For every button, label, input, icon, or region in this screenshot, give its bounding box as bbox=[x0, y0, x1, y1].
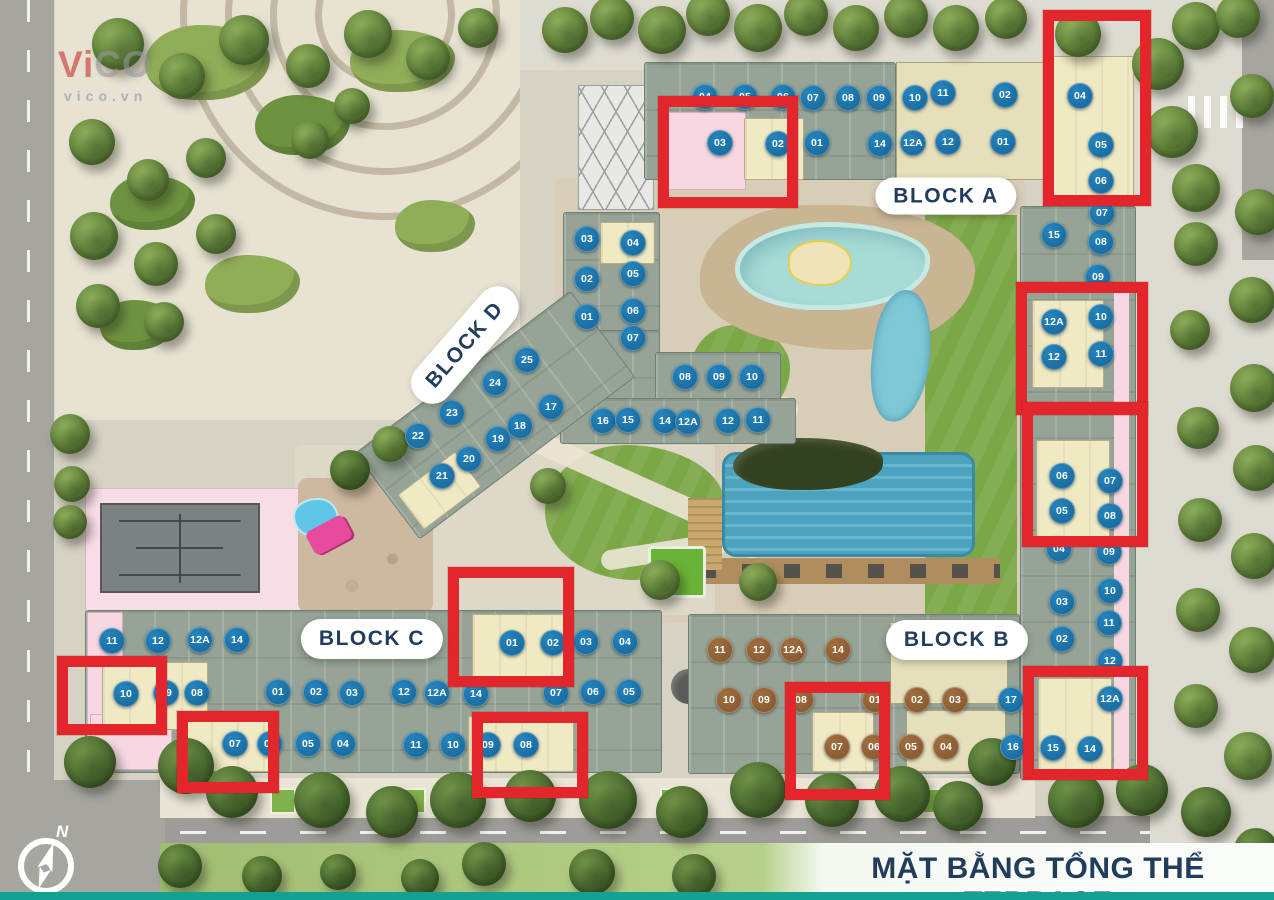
unit-12A: 12A bbox=[675, 409, 701, 435]
tree-icon bbox=[833, 5, 879, 51]
unit-11: 11 bbox=[745, 407, 771, 433]
unit-10: 10 bbox=[739, 364, 765, 390]
unit-12A: 12A bbox=[780, 637, 806, 663]
unit-04: 04 bbox=[933, 734, 959, 760]
unit-24: 24 bbox=[482, 370, 508, 396]
tree-icon bbox=[1229, 277, 1274, 323]
highlight-box bbox=[1022, 402, 1148, 547]
unit-12A: 12A bbox=[424, 680, 450, 706]
watermark-domain: vico.vn bbox=[64, 88, 152, 104]
unit-03: 03 bbox=[942, 687, 968, 713]
tree-icon bbox=[458, 8, 498, 48]
tree-icon bbox=[242, 856, 282, 896]
tree-icon bbox=[1235, 189, 1274, 235]
unit-01: 01 bbox=[804, 130, 830, 156]
unit-05: 05 bbox=[620, 261, 646, 287]
tree-icon bbox=[186, 138, 226, 178]
unit-04: 04 bbox=[330, 731, 356, 757]
tree-icon bbox=[1178, 498, 1222, 542]
unit-15: 15 bbox=[615, 407, 641, 433]
unit-08: 08 bbox=[835, 85, 861, 111]
tree-icon bbox=[933, 5, 979, 51]
tree-icon bbox=[739, 563, 777, 601]
block-label-block-b: BLOCK B bbox=[886, 620, 1028, 660]
unit-04: 04 bbox=[620, 230, 646, 256]
unit-01: 01 bbox=[990, 129, 1016, 155]
unit-10: 10 bbox=[716, 687, 742, 713]
unit-08: 08 bbox=[184, 680, 210, 706]
tree-icon bbox=[334, 88, 370, 124]
unit-08: 08 bbox=[1088, 229, 1114, 255]
tree-icon bbox=[530, 468, 566, 504]
site-plan: 0405060708091011020302011412A12010405060… bbox=[0, 0, 1274, 900]
tree-icon bbox=[1170, 310, 1210, 350]
tree-icon bbox=[590, 0, 634, 40]
footer-accent-bar bbox=[0, 892, 1274, 900]
unit-10: 10 bbox=[1097, 578, 1123, 604]
unit-15: 15 bbox=[1041, 222, 1067, 248]
block-label-block-c: BLOCK C bbox=[301, 619, 443, 659]
tree-icon bbox=[53, 505, 87, 539]
unit-18: 18 bbox=[507, 413, 533, 439]
unit-12: 12 bbox=[391, 679, 417, 705]
tree-icon bbox=[1174, 222, 1218, 266]
highlight-box bbox=[177, 711, 279, 793]
tree-icon bbox=[159, 53, 205, 99]
tree-icon bbox=[1172, 164, 1220, 212]
tree-icon bbox=[1224, 732, 1272, 780]
tree-icon bbox=[638, 6, 686, 54]
tree-icon bbox=[196, 214, 236, 254]
tree-icon bbox=[1230, 364, 1274, 412]
tree-icon bbox=[1181, 787, 1231, 837]
watermark-brand-red: Vi bbox=[58, 44, 94, 85]
unit-11: 11 bbox=[1096, 610, 1122, 636]
tree-icon bbox=[127, 159, 169, 201]
tree-icon bbox=[985, 0, 1027, 39]
tree-icon bbox=[291, 121, 329, 159]
highlight-box bbox=[785, 682, 890, 800]
tree-icon bbox=[76, 284, 120, 328]
tree-icon bbox=[69, 119, 115, 165]
unit-19: 19 bbox=[485, 426, 511, 452]
unit-03: 03 bbox=[1049, 589, 1075, 615]
block-label-block-d: BLOCK D bbox=[403, 278, 528, 413]
unit-02: 02 bbox=[574, 266, 600, 292]
unit-07: 07 bbox=[800, 85, 826, 111]
unit-05: 05 bbox=[616, 679, 642, 705]
unit-02: 02 bbox=[1049, 626, 1075, 652]
block-label-block-a: BLOCK A bbox=[875, 178, 1016, 215]
unit-03: 03 bbox=[573, 629, 599, 655]
tree-icon bbox=[1048, 772, 1104, 828]
tree-icon bbox=[1172, 2, 1220, 50]
tree-icon bbox=[70, 212, 118, 260]
unit-03: 03 bbox=[574, 226, 600, 252]
unit-12: 12 bbox=[746, 637, 772, 663]
tree-icon bbox=[462, 842, 506, 886]
unit-22: 22 bbox=[405, 423, 431, 449]
unit-14: 14 bbox=[825, 637, 851, 663]
highlight-box bbox=[1016, 282, 1148, 415]
unit-02: 02 bbox=[904, 687, 930, 713]
tree-icon bbox=[1174, 684, 1218, 728]
tree-icon bbox=[50, 414, 90, 454]
unit-25: 25 bbox=[514, 347, 540, 373]
tree-icon bbox=[54, 466, 90, 502]
tree-icon bbox=[542, 7, 588, 53]
unit-01: 01 bbox=[265, 679, 291, 705]
unit-11: 11 bbox=[930, 80, 956, 106]
tree-icon bbox=[1177, 407, 1219, 449]
tree-icon bbox=[1230, 74, 1274, 118]
unit-02: 02 bbox=[992, 82, 1018, 108]
tree-icon bbox=[686, 0, 730, 36]
tree-icon bbox=[730, 762, 786, 818]
unit-16: 16 bbox=[590, 408, 616, 434]
unit-20: 20 bbox=[456, 446, 482, 472]
unit-21: 21 bbox=[429, 463, 455, 489]
tree-icon bbox=[784, 0, 828, 36]
map-overlay-layer: 0405060708091011020302011412A12010405060… bbox=[0, 0, 1274, 900]
tree-icon bbox=[158, 844, 202, 888]
tree-icon bbox=[734, 4, 782, 52]
unit-06: 06 bbox=[580, 679, 606, 705]
unit-09: 09 bbox=[751, 687, 777, 713]
unit-12A: 12A bbox=[900, 130, 926, 156]
unit-23: 23 bbox=[439, 400, 465, 426]
tree-icon bbox=[219, 15, 269, 65]
tree-icon bbox=[366, 786, 418, 838]
unit-12: 12 bbox=[935, 129, 961, 155]
highlight-box bbox=[658, 96, 798, 208]
tree-icon bbox=[656, 786, 708, 838]
tree-icon bbox=[1216, 0, 1260, 38]
unit-02: 02 bbox=[303, 679, 329, 705]
tree-icon bbox=[406, 36, 450, 80]
highlight-box bbox=[472, 712, 588, 798]
unit-08: 08 bbox=[672, 364, 698, 390]
tree-icon bbox=[330, 450, 370, 490]
unit-12: 12 bbox=[715, 408, 741, 434]
unit-17: 17 bbox=[998, 687, 1024, 713]
unit-05: 05 bbox=[898, 734, 924, 760]
unit-04: 04 bbox=[612, 629, 638, 655]
tree-icon bbox=[1231, 533, 1274, 579]
compass-icon: N bbox=[8, 826, 92, 898]
unit-07: 07 bbox=[620, 325, 646, 351]
watermark: ViCO vico.vn bbox=[58, 44, 152, 104]
unit-12: 12 bbox=[145, 628, 171, 654]
unit-09: 09 bbox=[866, 85, 892, 111]
unit-06: 06 bbox=[620, 298, 646, 324]
unit-11: 11 bbox=[707, 637, 733, 663]
watermark-brand-gray: CO bbox=[94, 44, 152, 85]
tree-icon bbox=[569, 849, 615, 895]
unit-10: 10 bbox=[440, 732, 466, 758]
unit-14: 14 bbox=[867, 131, 893, 157]
highlight-box bbox=[1023, 666, 1148, 780]
unit-01: 01 bbox=[574, 304, 600, 330]
tree-icon bbox=[286, 44, 330, 88]
tree-icon bbox=[1176, 588, 1220, 632]
unit-14: 14 bbox=[224, 627, 250, 653]
tree-icon bbox=[144, 302, 184, 342]
tree-icon bbox=[933, 781, 983, 831]
unit-12A: 12A bbox=[187, 627, 213, 653]
tree-icon bbox=[1146, 106, 1198, 158]
tree-icon bbox=[294, 772, 350, 828]
unit-17: 17 bbox=[538, 394, 564, 420]
tree-icon bbox=[344, 10, 392, 58]
unit-11: 11 bbox=[403, 732, 429, 758]
tree-icon bbox=[884, 0, 928, 38]
unit-10: 10 bbox=[902, 85, 928, 111]
tree-icon bbox=[640, 560, 680, 600]
tree-icon bbox=[372, 426, 408, 462]
tree-icon bbox=[320, 854, 356, 890]
highlight-box bbox=[57, 656, 167, 735]
tree-icon bbox=[1229, 627, 1274, 673]
unit-09: 09 bbox=[706, 364, 732, 390]
unit-11: 11 bbox=[99, 628, 125, 654]
tree-icon bbox=[134, 242, 178, 286]
tree-icon bbox=[1233, 445, 1274, 491]
unit-03: 03 bbox=[339, 680, 365, 706]
tree-icon bbox=[64, 736, 116, 788]
unit-05: 05 bbox=[295, 731, 321, 757]
highlight-box bbox=[1043, 10, 1151, 206]
highlight-box bbox=[448, 567, 574, 687]
compass-north-label: N bbox=[56, 822, 68, 842]
